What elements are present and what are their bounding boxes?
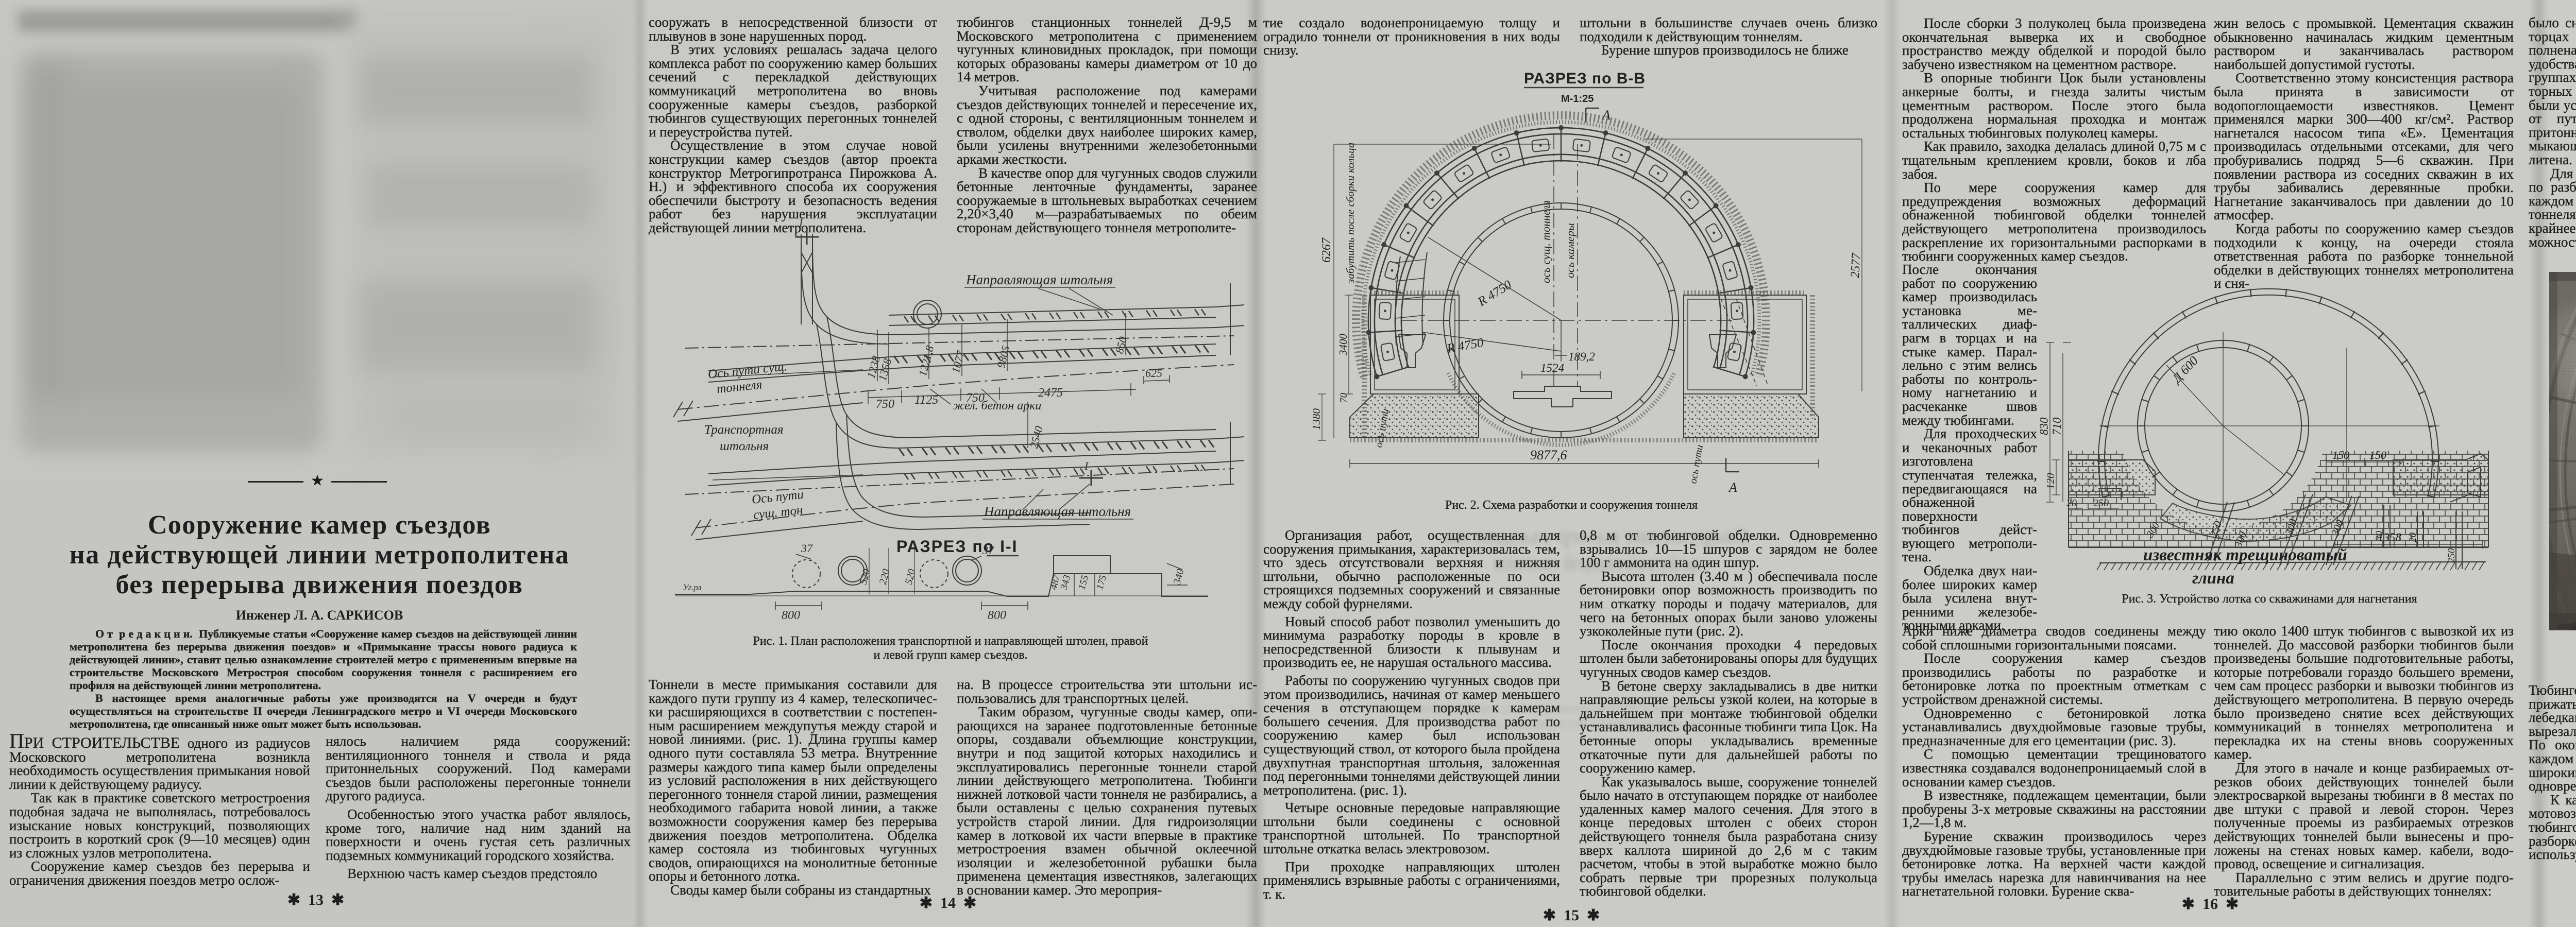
svg-text:забутить после сборки кольца: забутить после сборки кольца [1344,143,1357,284]
svg-text:520: 520 [858,568,873,586]
svg-text:2540: 2540 [1027,424,1046,450]
svg-text:жел. бетон арки: жел. бетон арки [953,399,1041,413]
svg-text:250: 250 [2093,497,2109,509]
svg-text:ось пути: ось пути [1687,444,1705,485]
svg-text:тоннеля: тоннеля [716,377,763,396]
svg-text:1077: 1077 [949,349,968,374]
svg-text:Направляющая штольня: Направляющая штольня [965,272,1113,287]
svg-text:155: 155 [1077,574,1091,591]
svg-text:1380: 1380 [1310,408,1323,431]
svg-text:37: 37 [801,542,813,555]
svg-text:1524: 1524 [1540,362,1564,374]
svg-text:710: 710 [2050,417,2063,435]
svg-text:1125: 1125 [914,393,938,407]
svg-text:Направляющая штольня: Направляющая штольня [984,504,1131,519]
svg-text:340: 340 [1171,568,1186,587]
svg-text:3400: 3400 [1337,334,1349,356]
svg-text:250: 250 [2446,548,2457,563]
svg-text:РАЗРЕЗ по В-В: РАЗРЕЗ по В-В [1524,70,1646,87]
svg-text:800: 800 [782,609,800,622]
svg-text:2577: 2577 [1849,252,1863,278]
svg-text:120: 120 [2044,473,2057,489]
svg-text:37: 37 [982,544,994,557]
svg-text:520: 520 [903,568,918,586]
svg-text:6267: 6267 [1320,237,1333,263]
svg-text:известняк трещиноватый: известняк трещиноватый [2143,546,2347,564]
svg-text:750: 750 [876,398,894,411]
svg-text:850: 850 [1113,335,1130,355]
svg-text:I: I [799,216,804,229]
svg-text:2475: 2475 [1038,386,1063,400]
svg-text:9877,6: 9877,6 [1530,448,1567,462]
svg-text:А: А [1728,480,1737,495]
svg-text:М-1:25: М-1:25 [1561,93,1594,105]
svg-text:175: 175 [1095,574,1109,591]
svg-text:20: 20 [2066,497,2077,509]
svg-text:150: 150 [2332,449,2349,461]
svg-text:625: 625 [1145,367,1162,380]
svg-text:I: I [1084,459,1089,472]
svg-text:сущ. тон: сущ. тон [753,503,804,522]
svg-text:20: 20 [2408,533,2418,543]
svg-text:Уг.рл: Уг.рл [683,582,702,592]
svg-text:штольня: штольня [720,439,769,453]
svg-text:R 4750: R 4750 [1475,278,1514,310]
svg-text:9805: 9805 [994,344,1013,369]
svg-text:ось камеры: ось камеры [1564,223,1577,278]
svg-text:1221,8: 1221,8 [916,344,937,377]
svg-text:800: 800 [988,609,1006,622]
svg-text:150: 150 [2369,449,2386,461]
svg-text:глина: глина [2192,569,2234,588]
svg-text:1358: 1358 [2378,531,2402,544]
svg-text:Ось пути сущ.: Ось пути сущ. [707,359,788,382]
svg-text:189,2: 189,2 [1568,350,1595,363]
svg-text:ось сущ. тоннеля: ось сущ. тоннеля [1539,200,1552,283]
svg-text:830: 830 [2038,417,2050,435]
svg-text:Транспортная: Транспортная [704,423,784,437]
svg-text:220: 220 [877,568,892,586]
svg-text:70: 70 [1338,393,1349,403]
